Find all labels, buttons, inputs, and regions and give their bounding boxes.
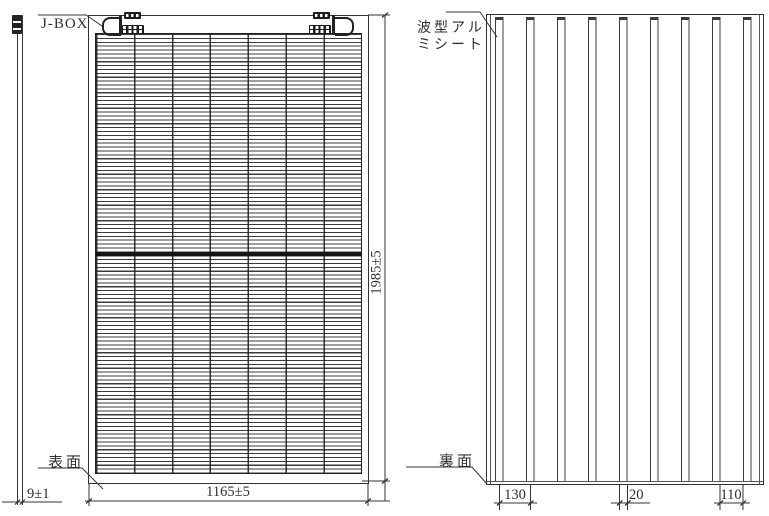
edge-view-panel-profile — [17, 15, 23, 488]
jbox-connector-right — [313, 12, 330, 19]
back-frame-inner-bottom — [487, 481, 763, 482]
jbox-stem-right — [332, 15, 335, 35]
rib-gap-dimension: 110 — [717, 487, 745, 504]
solar-cell-grid — [95, 33, 362, 474]
back-frame-inner-right — [759, 15, 760, 484]
solar-panel-drawing: J-BOX 波型アル ミシート 表面 裏面 9±1 1165±5 1985±5 … — [0, 0, 769, 516]
width-dimension: 1165±5 — [196, 484, 260, 501]
back-surface-label: 裏面 — [439, 450, 475, 471]
height-dimension: 1985±5 — [369, 247, 386, 299]
jbox-connector-left — [124, 12, 141, 19]
corrugated-sheet-label-line2: ミシート — [417, 34, 485, 54]
back-view-frame — [486, 14, 764, 485]
jbox-cable-loop-right — [335, 17, 354, 36]
front-surface-label: 表面 — [48, 451, 84, 472]
back-frame-inner-left — [490, 15, 491, 484]
rib-width-dimension: 20 — [629, 487, 644, 504]
jbox-label: J-BOX — [41, 16, 89, 33]
jbox-terminal-left — [122, 25, 144, 34]
edge-view-jbox-connector — [12, 15, 22, 34]
corrugated-rib-caps — [495, 17, 752, 20]
center-busbar-line — [96, 252, 361, 256]
corrugated-ribs — [495, 17, 752, 481]
rib-pitch-dimension: 130 — [499, 487, 531, 504]
front-view-frame — [88, 15, 369, 484]
thickness-dimension: 9±1 — [27, 486, 49, 503]
jbox-terminal-right — [309, 25, 331, 34]
